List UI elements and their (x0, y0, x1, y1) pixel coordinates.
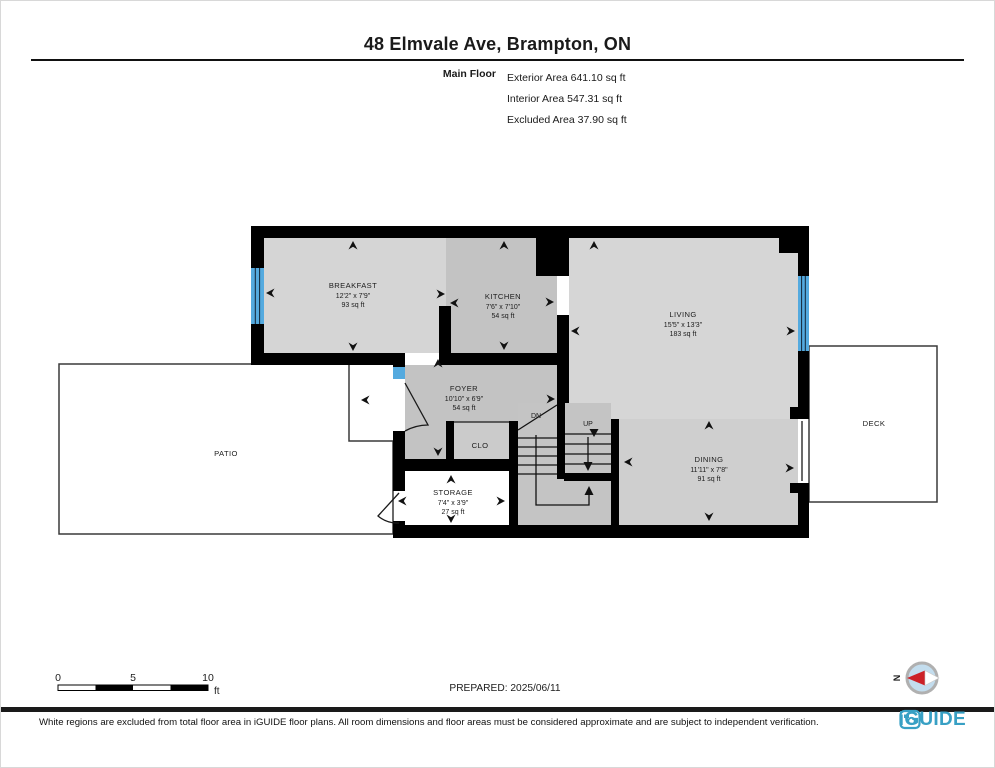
scale-unit: ft (214, 686, 220, 697)
stairs-down-label: DN (531, 413, 541, 420)
stairs-up-label: UP (583, 421, 593, 428)
scale-tick-5: 5 (130, 672, 136, 684)
iguide-brand: iGUIDE (899, 709, 966, 731)
entry-sidelight-window (393, 367, 405, 379)
scale-bar: 0 5 10 ft (55, 672, 220, 697)
prepared-date: PREPARED: 2025/06/11 (449, 683, 561, 694)
floor-plan-drawing: BREAKFAST 12'2" x 7'9" 93 sq ft KITCHEN … (1, 1, 995, 768)
room-kitchen-name: KITCHEN (485, 292, 521, 301)
room-foyer-name: FOYER (450, 384, 478, 393)
compass-north-label: N (892, 675, 902, 682)
room-living-area: 183 sq ft (670, 331, 697, 338)
room-breakfast-area: 93 sq ft (342, 302, 365, 309)
floor-plan-page: 48 Elmvale Ave, Brampton, ON Main Floor … (0, 0, 995, 768)
living-window (798, 276, 809, 351)
scale-tick-10: 10 (202, 672, 214, 684)
room-foyer-dims: 10'10" x 6'9" (445, 396, 484, 403)
room-kitchen-area: 54 sq ft (492, 313, 515, 320)
room-breakfast-dims: 12'2" x 7'9" (336, 293, 371, 300)
room-deck-name: DECK (863, 419, 886, 428)
footer-disclaimer: White regions are excluded from total fl… (39, 717, 819, 728)
iguide-logo-icon (899, 709, 921, 730)
room-living-name: LIVING (669, 310, 696, 319)
compass-icon: N (892, 663, 939, 693)
room-breakfast-name: BREAKFAST (329, 281, 377, 290)
footer-divider (1, 707, 995, 712)
room-storage-area: 27 sq ft (442, 509, 465, 516)
room-dining-area: 91 sq ft (698, 476, 721, 483)
room-foyer-area: 54 sq ft (453, 405, 476, 412)
room-storage-name: STORAGE (433, 488, 473, 497)
room-kitchen-dims: 7'6" x 7'10" (486, 304, 521, 311)
room-living-dims: 15'5" x 13'3" (664, 322, 703, 329)
room-patio-name: PATIO (214, 449, 238, 458)
room-dining-name: DINING (695, 455, 724, 464)
room-closet-name: CLO (472, 441, 489, 450)
breakfast-window (251, 268, 264, 324)
scale-tick-0: 0 (55, 672, 61, 684)
room-dining-dims: 11'11" x 7'8" (690, 467, 728, 474)
room-storage-dims: 7'4" x 3'9" (438, 500, 469, 507)
